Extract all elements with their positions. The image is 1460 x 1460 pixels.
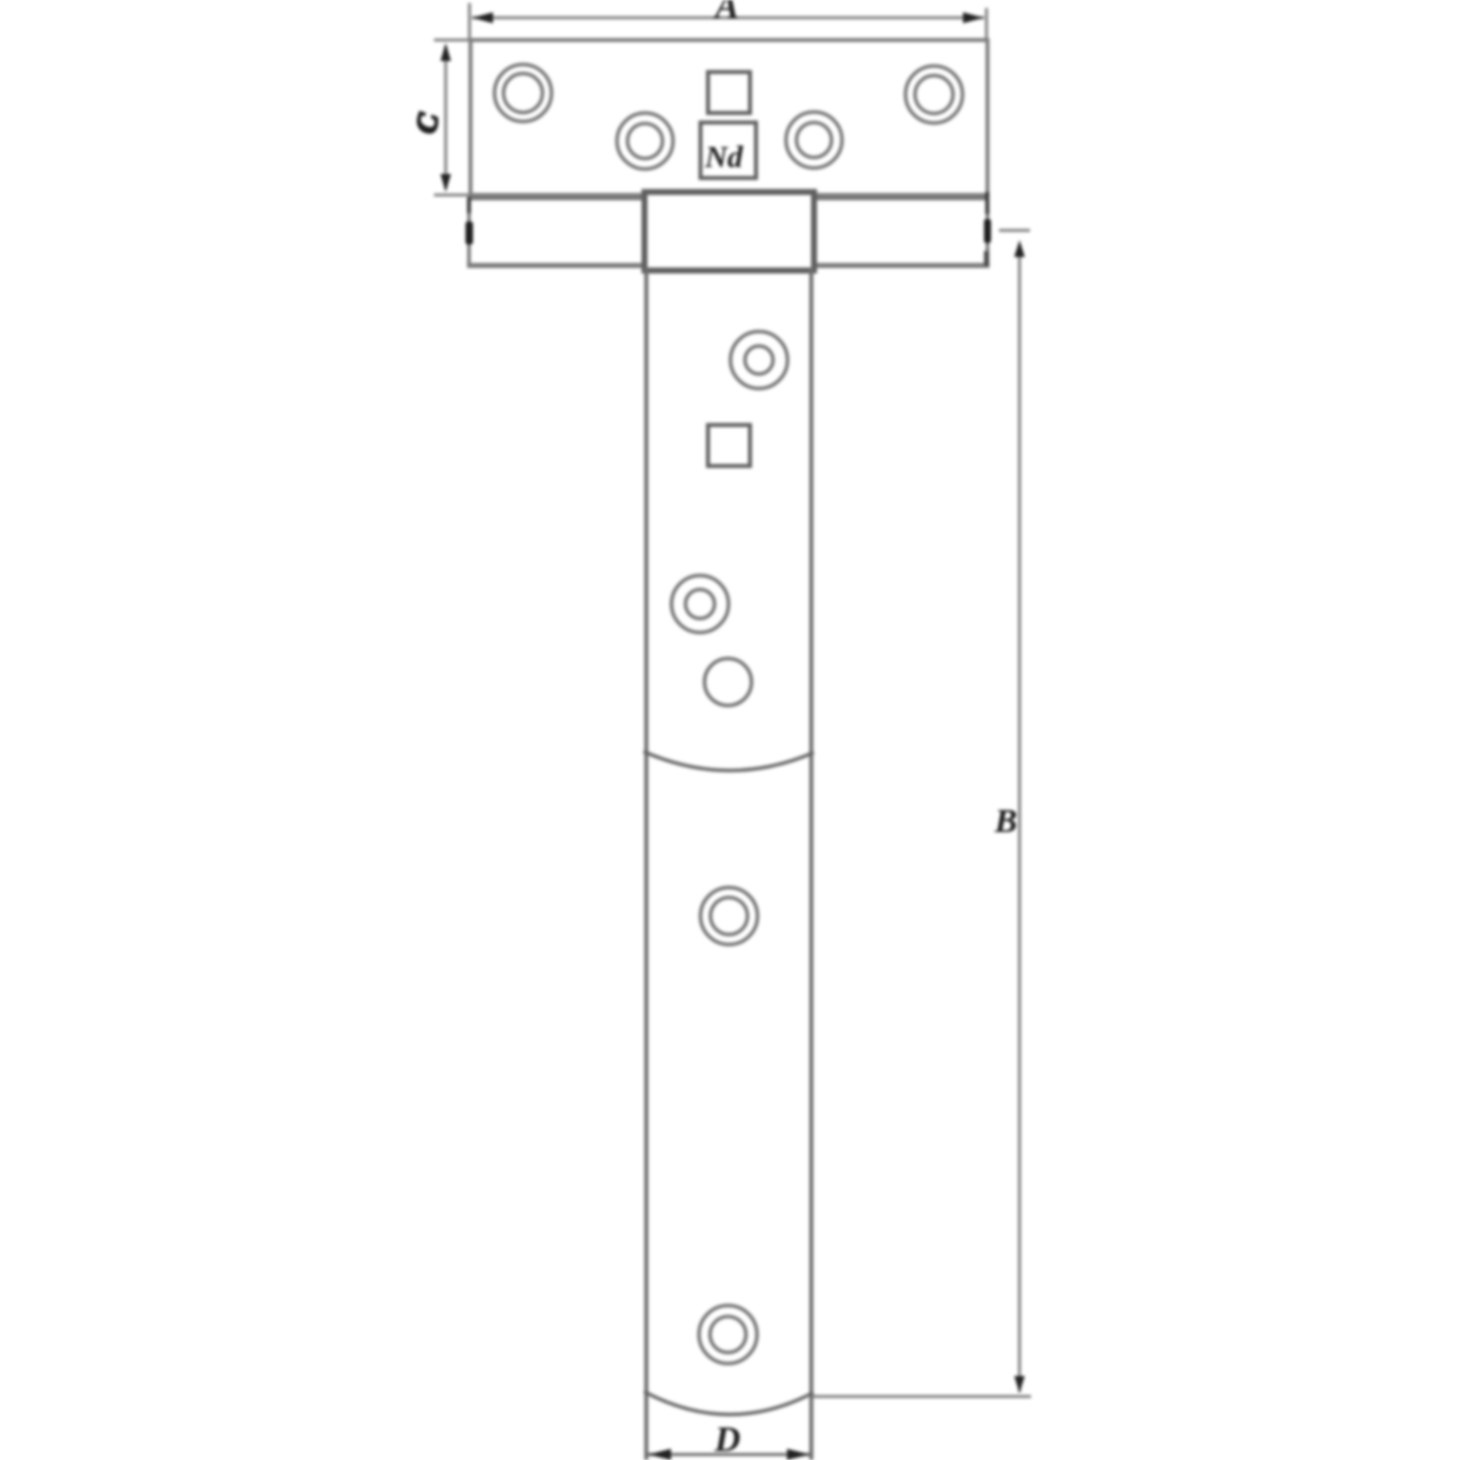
svg-text:B: B — [994, 803, 1018, 840]
svg-text:C: C — [410, 111, 445, 136]
svg-text:Nd: Nd — [704, 139, 743, 174]
svg-text:A: A — [713, 0, 739, 26]
